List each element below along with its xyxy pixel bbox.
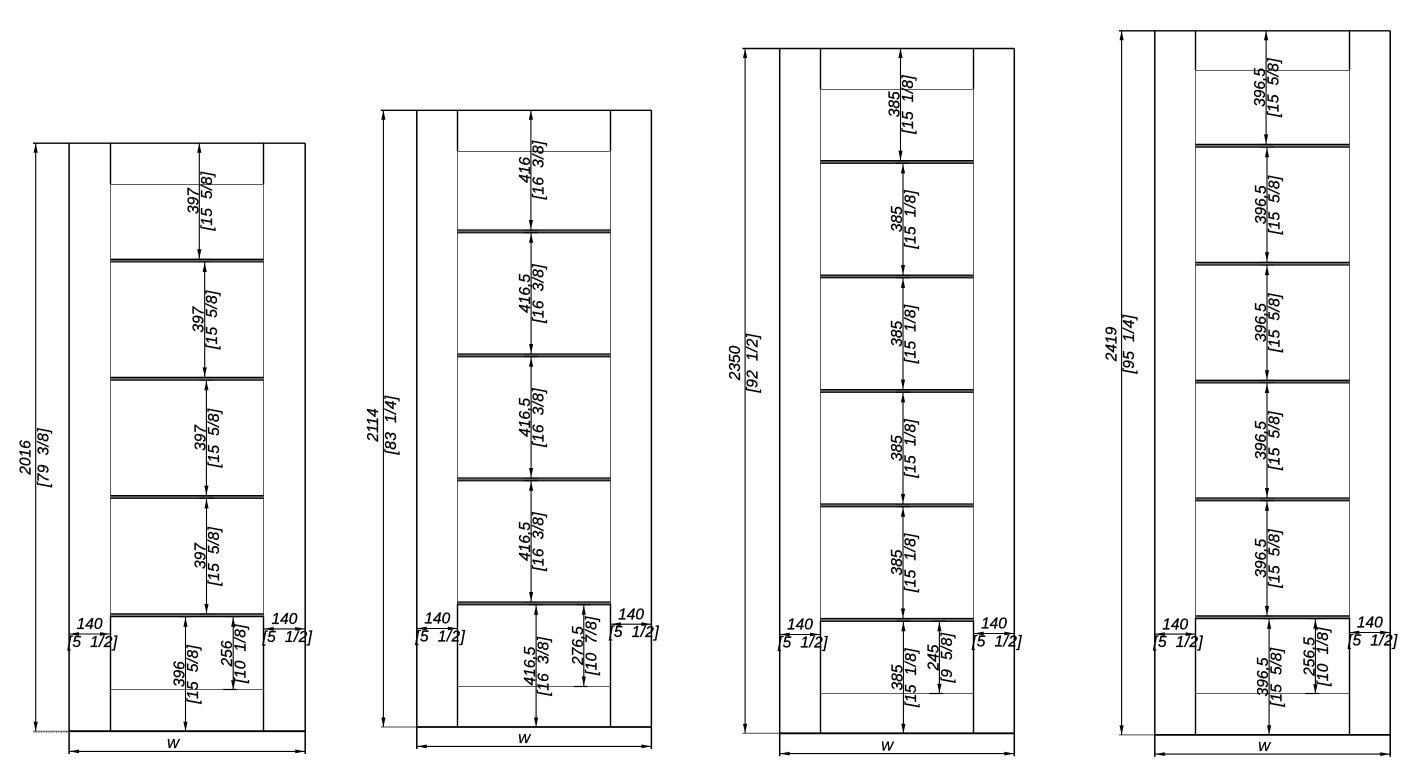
svg-text:140: 140 xyxy=(77,616,103,633)
svg-text:W: W xyxy=(518,731,532,746)
svg-text:[15 1/8]: [15 1/8] xyxy=(903,304,920,364)
svg-text:140: 140 xyxy=(787,617,813,634)
svg-text:[15 5/8]: [15 5/8] xyxy=(1267,293,1284,353)
svg-text:W: W xyxy=(167,736,181,751)
svg-text:[5 1/2]: [5 1/2] xyxy=(67,634,118,651)
svg-text:[15 5/8]: [15 5/8] xyxy=(204,290,221,350)
svg-text:2419: 2419 xyxy=(1103,326,1120,362)
svg-text:[5 1/2]: [5 1/2] xyxy=(1347,632,1398,649)
svg-text:[15 5/8]: [15 5/8] xyxy=(1267,175,1284,235)
svg-text:[15 1/8]: [15 1/8] xyxy=(903,648,920,708)
svg-text:[15 1/8]: [15 1/8] xyxy=(903,533,920,593)
svg-text:W: W xyxy=(1258,739,1272,754)
svg-text:[5 1/2]: [5 1/2] xyxy=(414,628,465,645)
svg-text:[16 3/8]: [16 3/8] xyxy=(531,388,548,448)
svg-text:[16 3/8]: [16 3/8] xyxy=(531,264,548,324)
svg-text:[15 5/8]: [15 5/8] xyxy=(206,526,223,586)
svg-text:[5 1/2]: [5 1/2] xyxy=(608,624,659,641)
svg-text:2016: 2016 xyxy=(17,440,34,476)
svg-text:[83 1/4]: [83 1/4] xyxy=(383,395,400,455)
svg-text:[15 1/8]: [15 1/8] xyxy=(903,189,920,249)
svg-text:[15 5/8]: [15 5/8] xyxy=(1267,411,1284,471)
svg-text:[5 1/2]: [5 1/2] xyxy=(261,629,312,646)
svg-text:[10 1/8]: [10 1/8] xyxy=(233,624,250,684)
svg-text:[15 5/8]: [15 5/8] xyxy=(199,171,216,231)
svg-text:[10 1/8]: [10 1/8] xyxy=(1315,627,1332,687)
svg-text:[10 7/8]: [10 7/8] xyxy=(583,616,600,676)
svg-text:[15 5/8]: [15 5/8] xyxy=(1267,529,1284,589)
svg-text:[15 1/8]: [15 1/8] xyxy=(900,75,917,135)
svg-text:140: 140 xyxy=(424,611,450,628)
svg-text:[5 1/2]: [5 1/2] xyxy=(971,633,1022,650)
svg-text:[5 1/2]: [5 1/2] xyxy=(1152,634,1203,651)
svg-text:[16 3/8]: [16 3/8] xyxy=(530,140,547,200)
svg-text:[15 5/8]: [15 5/8] xyxy=(1266,58,1283,118)
svg-text:2350: 2350 xyxy=(727,345,744,381)
svg-text:140: 140 xyxy=(618,606,644,623)
svg-text:140: 140 xyxy=(1162,616,1188,633)
svg-text:140: 140 xyxy=(981,616,1007,633)
svg-text:W: W xyxy=(881,738,895,753)
svg-text:140: 140 xyxy=(1357,615,1383,632)
svg-text:[16 3/8]: [16 3/8] xyxy=(536,636,553,696)
svg-text:[15 5/8]: [15 5/8] xyxy=(1269,647,1286,707)
svg-text:2114: 2114 xyxy=(365,408,382,443)
svg-text:[16 3/8]: [16 3/8] xyxy=(531,512,548,572)
svg-text:140: 140 xyxy=(271,611,297,628)
svg-text:[9 5/8]: [9 5/8] xyxy=(939,632,956,683)
svg-text:[79 3/8]: [79 3/8] xyxy=(35,428,52,488)
svg-text:[15 1/8]: [15 1/8] xyxy=(903,418,920,478)
svg-text:[95 1/4]: [95 1/4] xyxy=(1121,314,1138,374)
svg-text:[15 5/8]: [15 5/8] xyxy=(206,408,223,468)
svg-text:[92 1/2]: [92 1/2] xyxy=(745,333,762,393)
svg-text:[15 5/8]: [15 5/8] xyxy=(185,644,202,704)
svg-text:[5 1/2]: [5 1/2] xyxy=(777,634,828,651)
